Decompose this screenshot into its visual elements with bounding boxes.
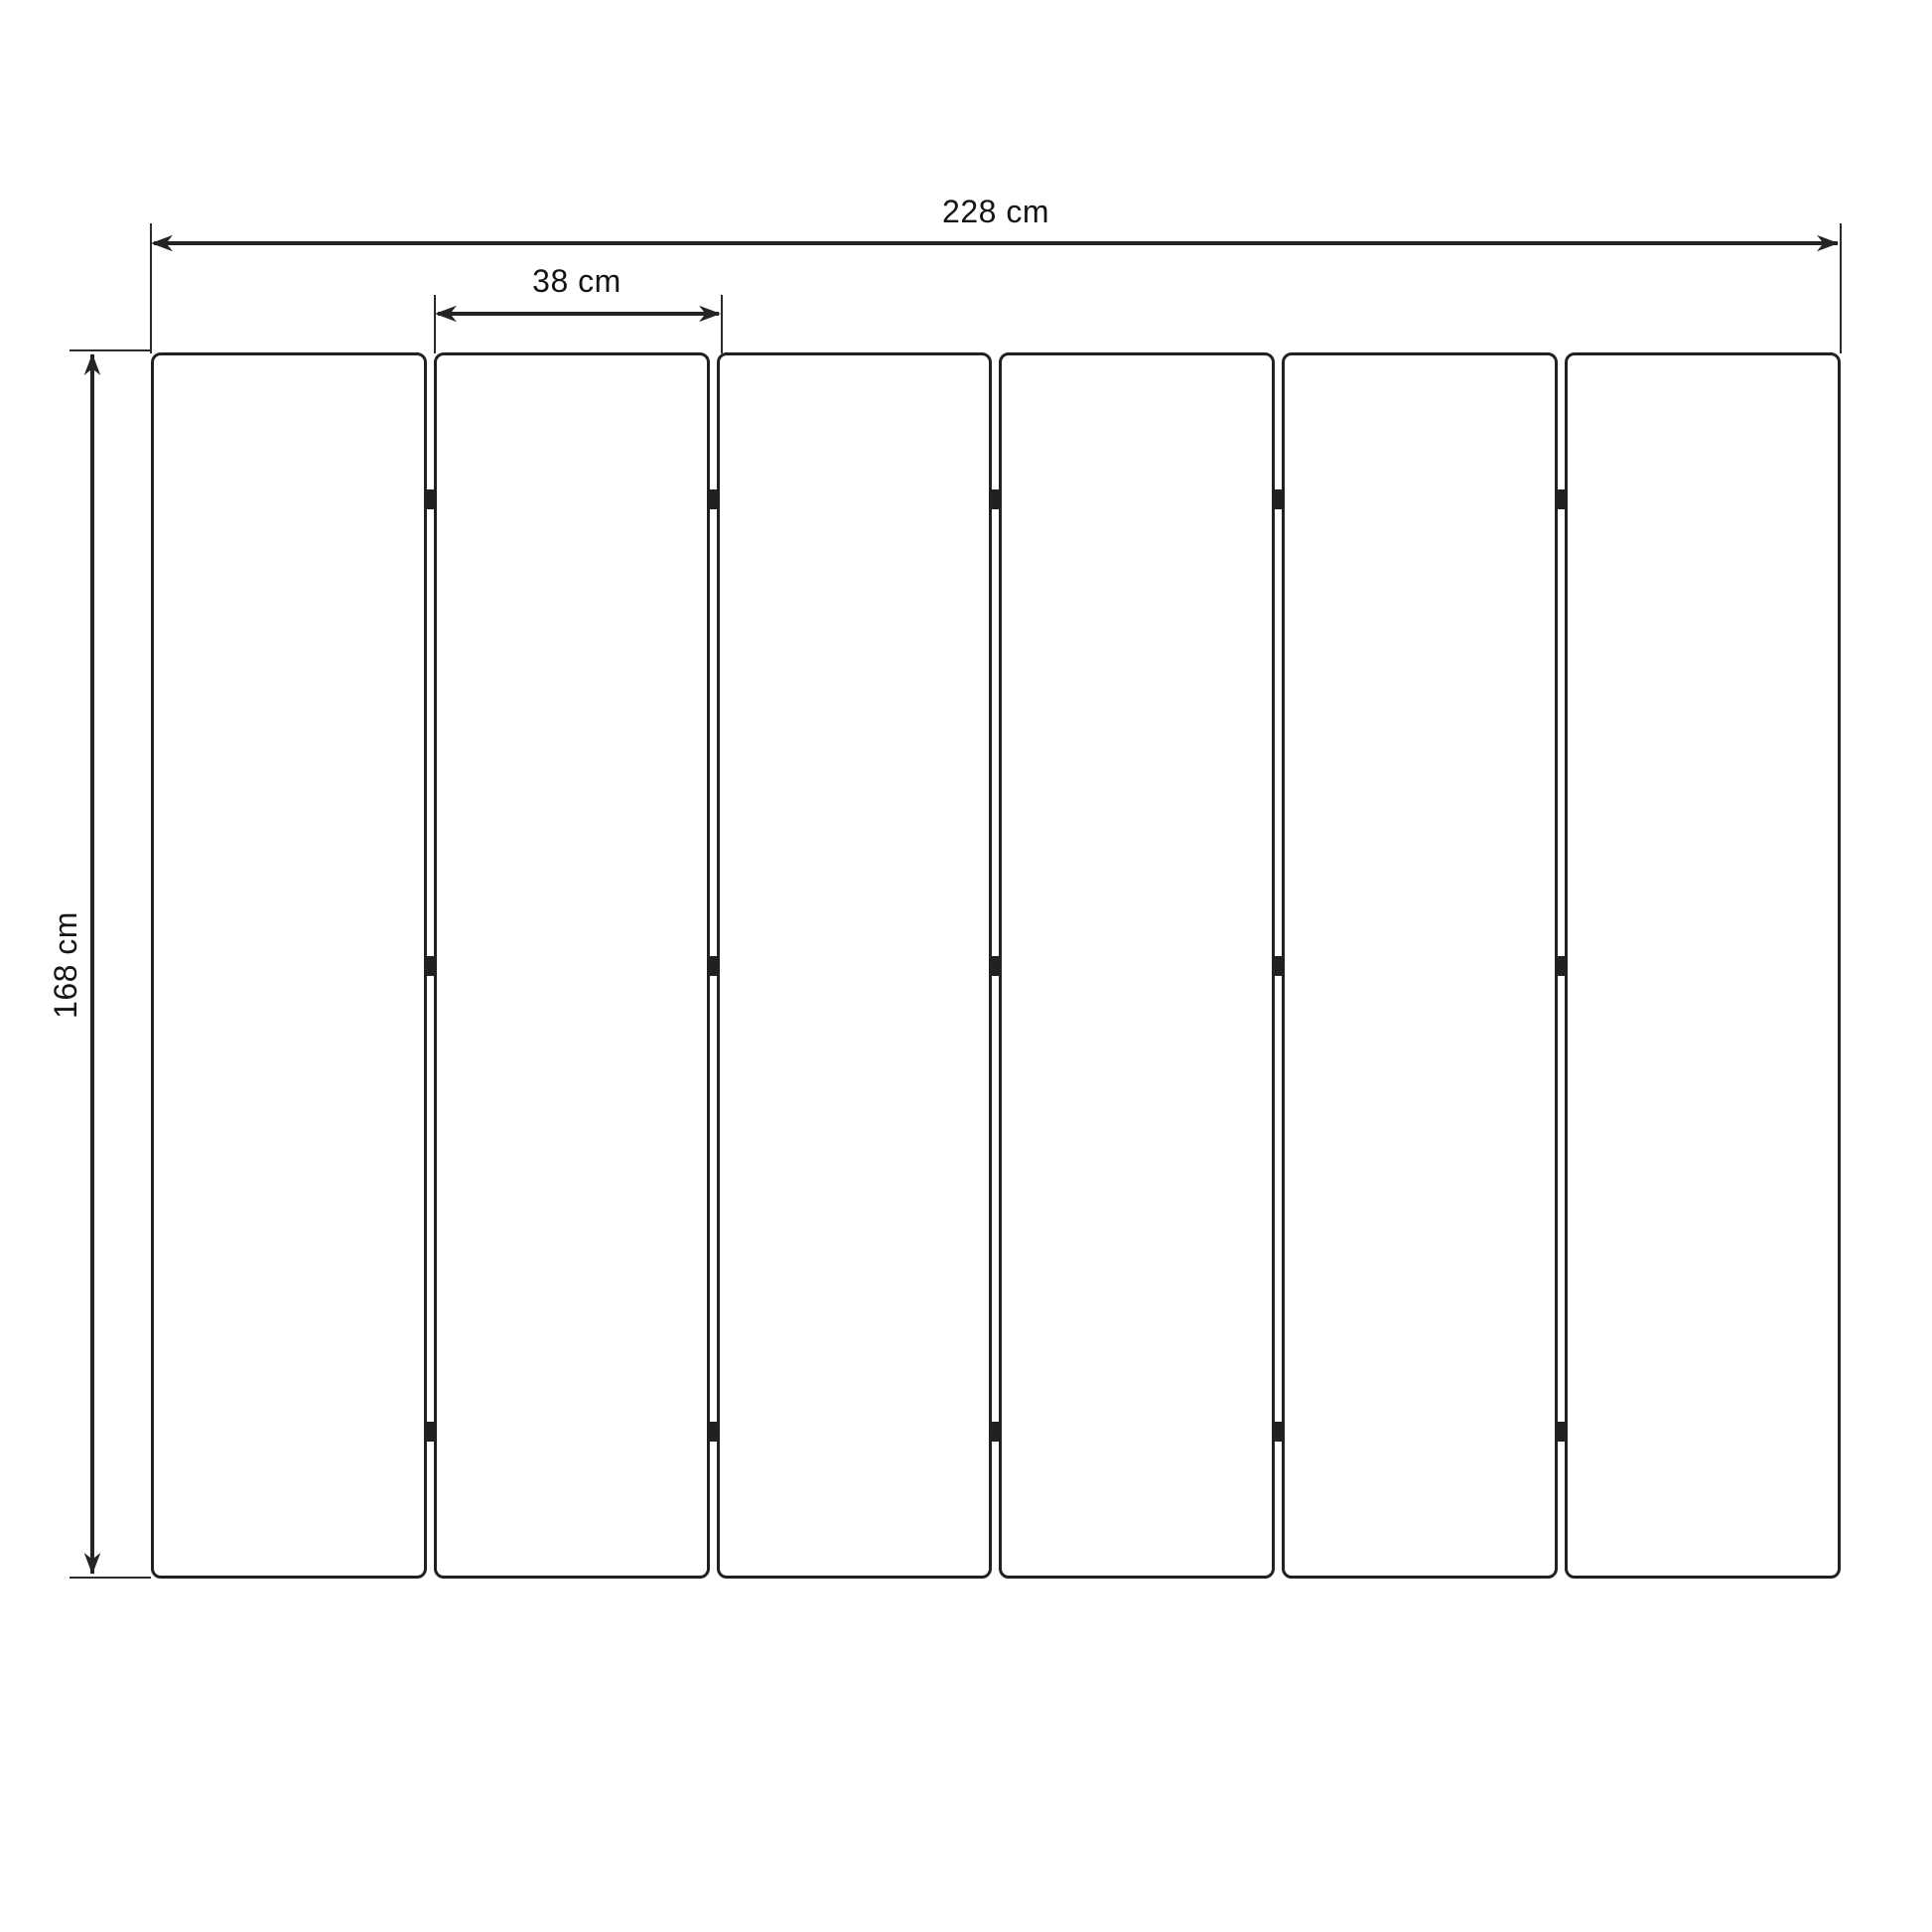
height-label: 168 cm xyxy=(46,816,85,1114)
panels-row xyxy=(151,352,1841,1579)
hinge xyxy=(1274,956,1283,976)
panel-1 xyxy=(151,352,427,1579)
height-dimension-line xyxy=(90,354,94,1574)
panel-4 xyxy=(999,352,1275,1579)
total-width-label: 228 cm xyxy=(847,193,1145,230)
extension-line-height-top xyxy=(69,349,151,351)
hinge xyxy=(1274,489,1283,509)
extension-line-panel-width-left xyxy=(434,295,436,353)
hinge xyxy=(426,1422,435,1442)
panel-3 xyxy=(717,352,993,1579)
hinge xyxy=(709,489,718,509)
hinge xyxy=(426,956,435,976)
hinge xyxy=(709,956,718,976)
panel-width-label: 38 cm xyxy=(428,262,726,300)
hinge xyxy=(992,1422,1001,1442)
panel-6 xyxy=(1565,352,1841,1579)
hinge xyxy=(1557,489,1566,509)
panel-2 xyxy=(434,352,710,1579)
extension-line-panel-width-right xyxy=(721,295,723,353)
hinge xyxy=(1557,956,1566,976)
hinge xyxy=(1557,1422,1566,1442)
panel-5 xyxy=(1282,352,1558,1579)
hinge xyxy=(426,489,435,509)
extension-line-height-bottom xyxy=(69,1577,151,1579)
extension-line-total-width-right xyxy=(1840,223,1842,353)
panel-dimension-diagram: 228 cm 38 cm 168 cm xyxy=(0,0,1932,1932)
total-width-dimension-line xyxy=(154,241,1838,245)
panel-width-dimension-line xyxy=(438,312,719,316)
hinge xyxy=(1274,1422,1283,1442)
hinge xyxy=(709,1422,718,1442)
hinge xyxy=(992,489,1001,509)
hinge xyxy=(992,956,1001,976)
extension-line-total-width-left xyxy=(150,223,152,353)
